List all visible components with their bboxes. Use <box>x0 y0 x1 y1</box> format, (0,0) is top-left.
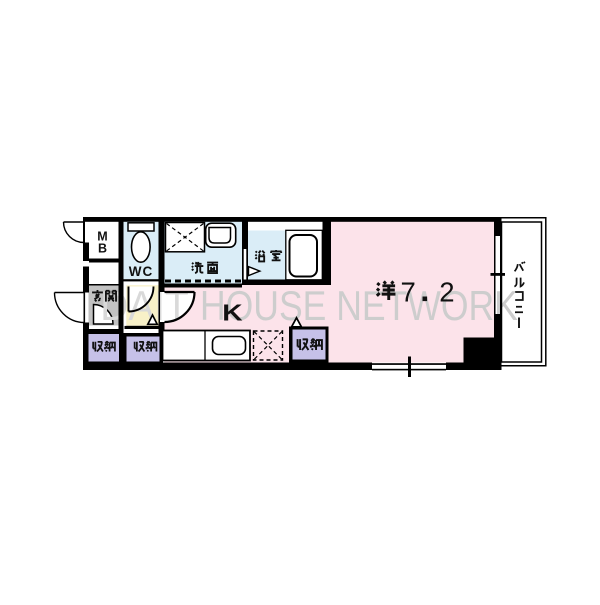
svg-text:7: 7 <box>401 277 416 308</box>
svg-text:B: B <box>98 242 107 256</box>
svg-text:2: 2 <box>439 277 454 308</box>
svg-text:WC: WC <box>129 264 154 279</box>
svg-text:HOUSE NETWORK: HOUSE NETWORK <box>200 283 518 329</box>
svg-text:K: K <box>222 301 243 326</box>
